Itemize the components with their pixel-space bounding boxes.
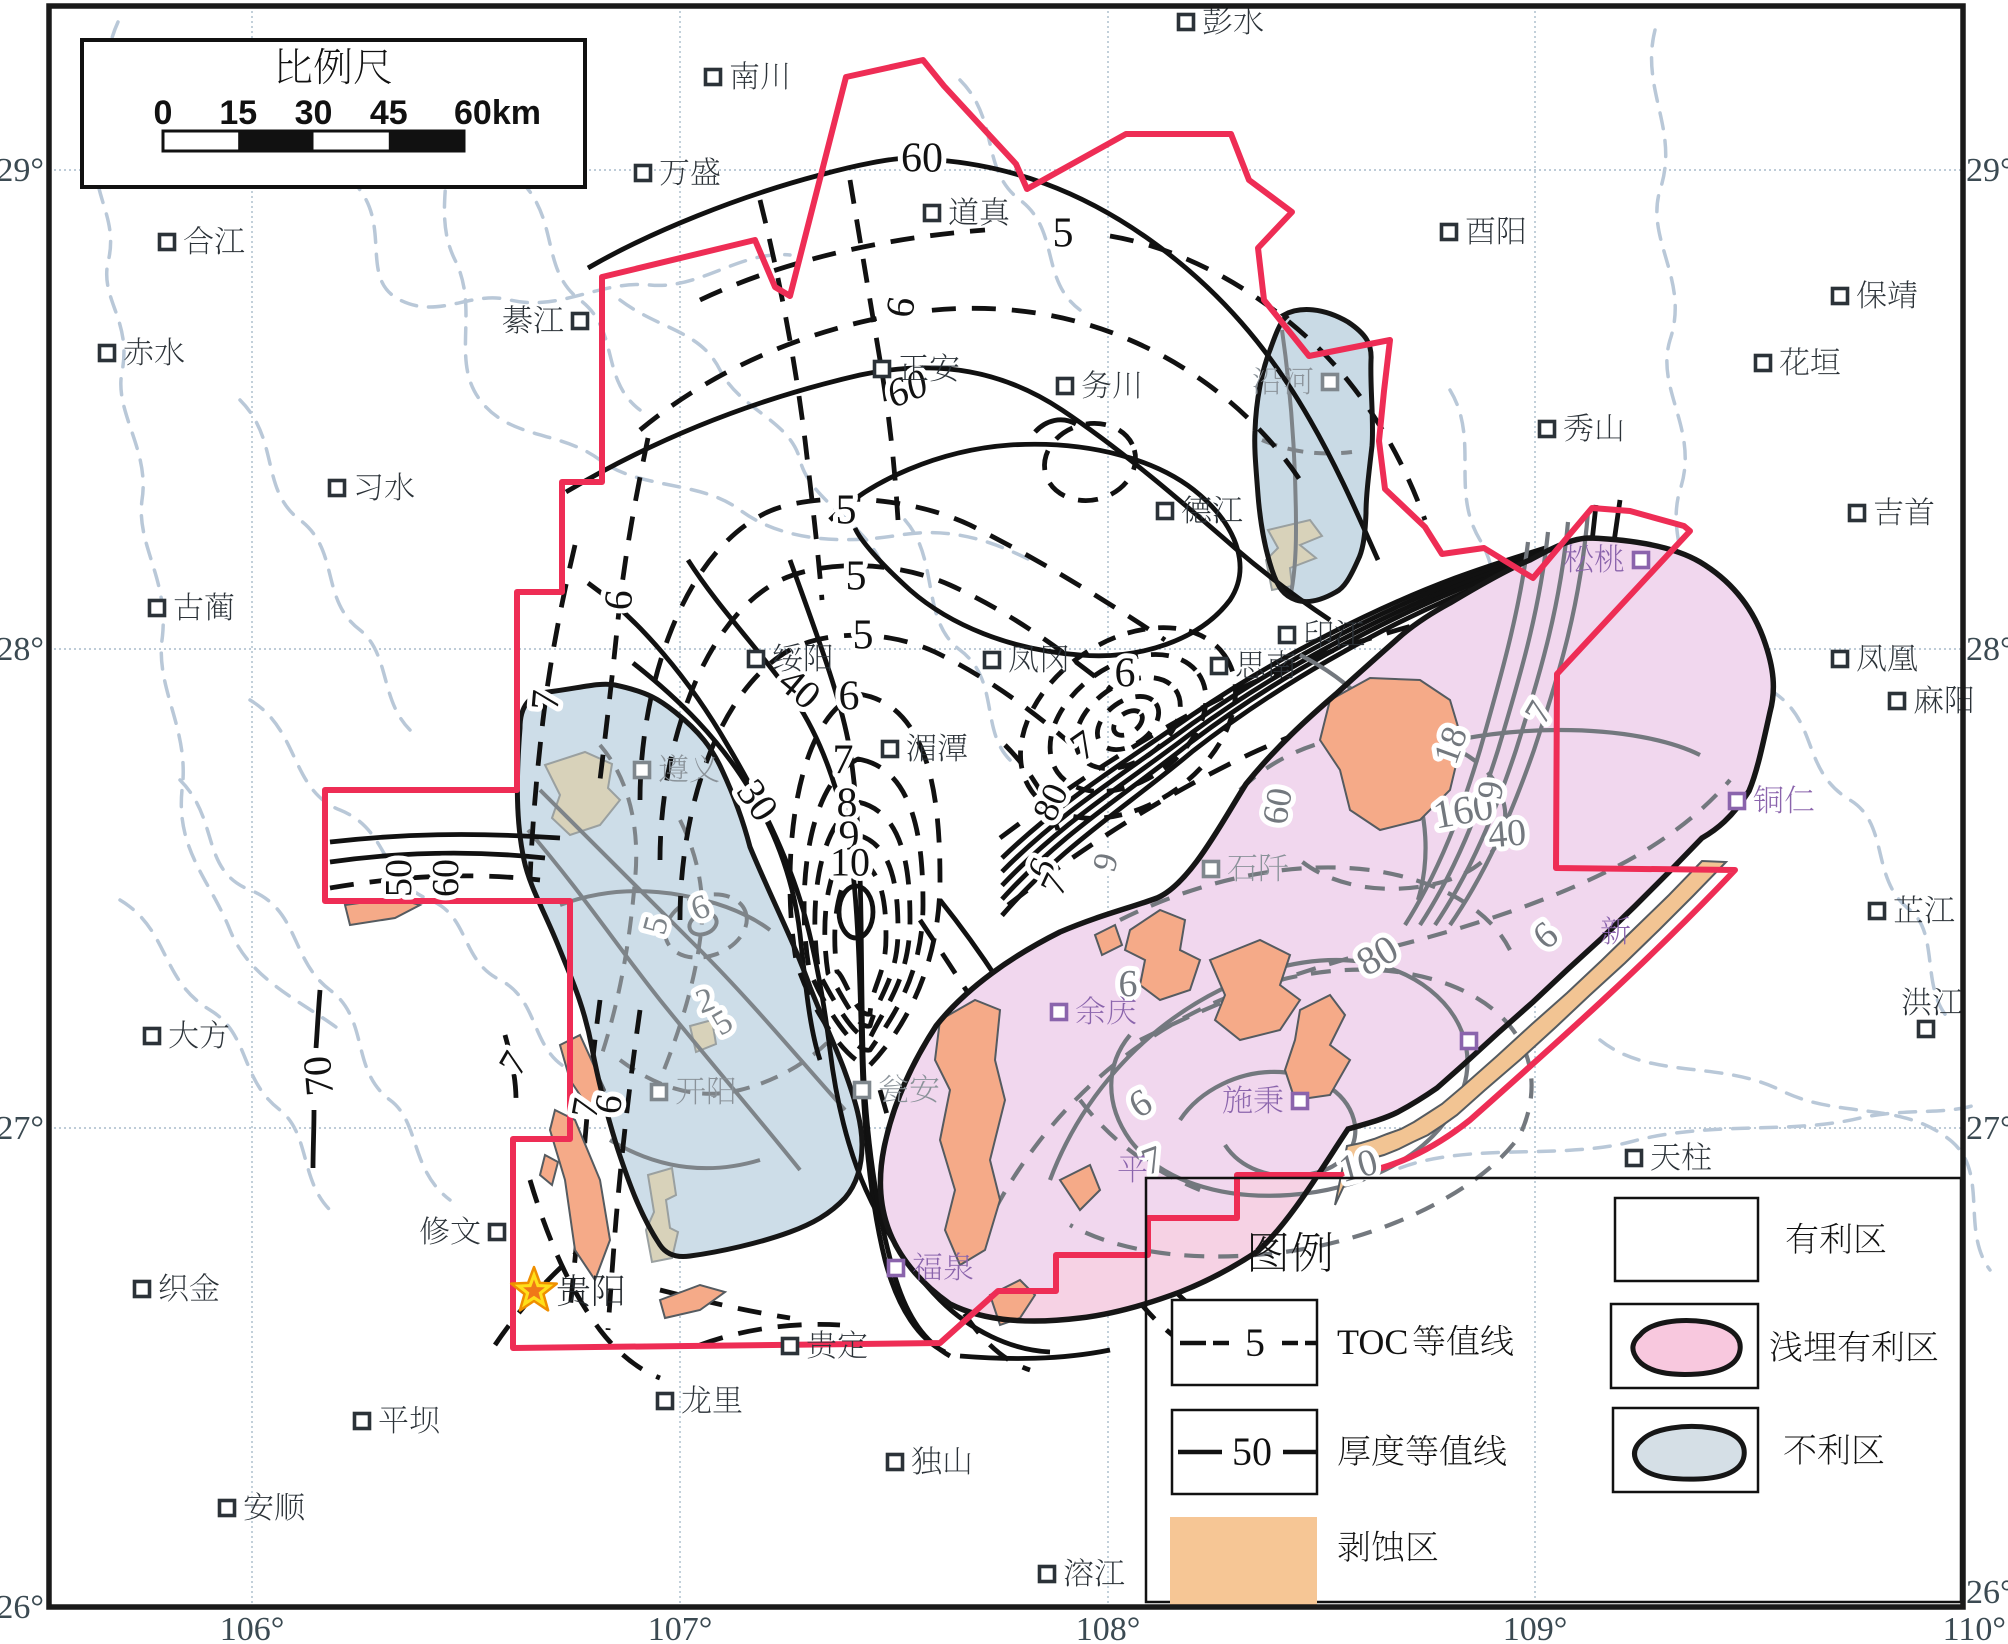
- svg-text:5: 5: [836, 487, 857, 533]
- svg-text:26°: 26°: [1966, 1574, 2008, 1611]
- svg-text:40: 40: [1486, 811, 1528, 856]
- svg-text:5: 5: [846, 553, 867, 599]
- svg-text:60: 60: [901, 135, 943, 181]
- svg-text:30: 30: [295, 94, 333, 132]
- svg-text:29°: 29°: [1966, 152, 2008, 189]
- svg-text:108°: 108°: [1076, 1611, 1141, 1644]
- svg-text:70: 70: [294, 1054, 342, 1098]
- svg-text:28°: 28°: [0, 631, 44, 668]
- svg-text:TOC: TOC: [1337, 1322, 1408, 1362]
- svg-text:50: 50: [1232, 1429, 1272, 1474]
- svg-text:107°: 107°: [648, 1611, 713, 1644]
- svg-text:6: 6: [839, 673, 860, 719]
- svg-text:60km: 60km: [454, 94, 541, 132]
- svg-text:6: 6: [1119, 963, 1138, 1005]
- svg-text:5: 5: [853, 612, 874, 658]
- svg-text:60: 60: [425, 859, 467, 897]
- svg-text:6: 6: [595, 588, 642, 612]
- svg-text:26°: 26°: [0, 1589, 44, 1626]
- svg-text:0: 0: [154, 94, 173, 132]
- svg-text:109°: 109°: [1503, 1611, 1568, 1644]
- svg-text:29°: 29°: [0, 152, 44, 189]
- svg-text:7: 7: [833, 737, 854, 783]
- svg-text:27°: 27°: [0, 1110, 44, 1147]
- svg-text:28°: 28°: [1966, 631, 2008, 668]
- svg-text:10: 10: [830, 840, 870, 885]
- svg-text:106°: 106°: [220, 1611, 285, 1644]
- svg-text:5: 5: [1053, 210, 1074, 256]
- svg-text:50: 50: [378, 859, 420, 897]
- svg-text:45: 45: [370, 94, 408, 132]
- svg-text:6: 6: [1115, 650, 1136, 696]
- svg-text:7: 7: [522, 688, 569, 712]
- svg-text:60: 60: [1254, 785, 1300, 827]
- svg-text:5: 5: [1245, 1320, 1265, 1365]
- svg-text:110°: 110°: [1943, 1611, 2006, 1644]
- svg-text:27°: 27°: [1966, 1110, 2008, 1147]
- svg-text:15: 15: [219, 94, 257, 132]
